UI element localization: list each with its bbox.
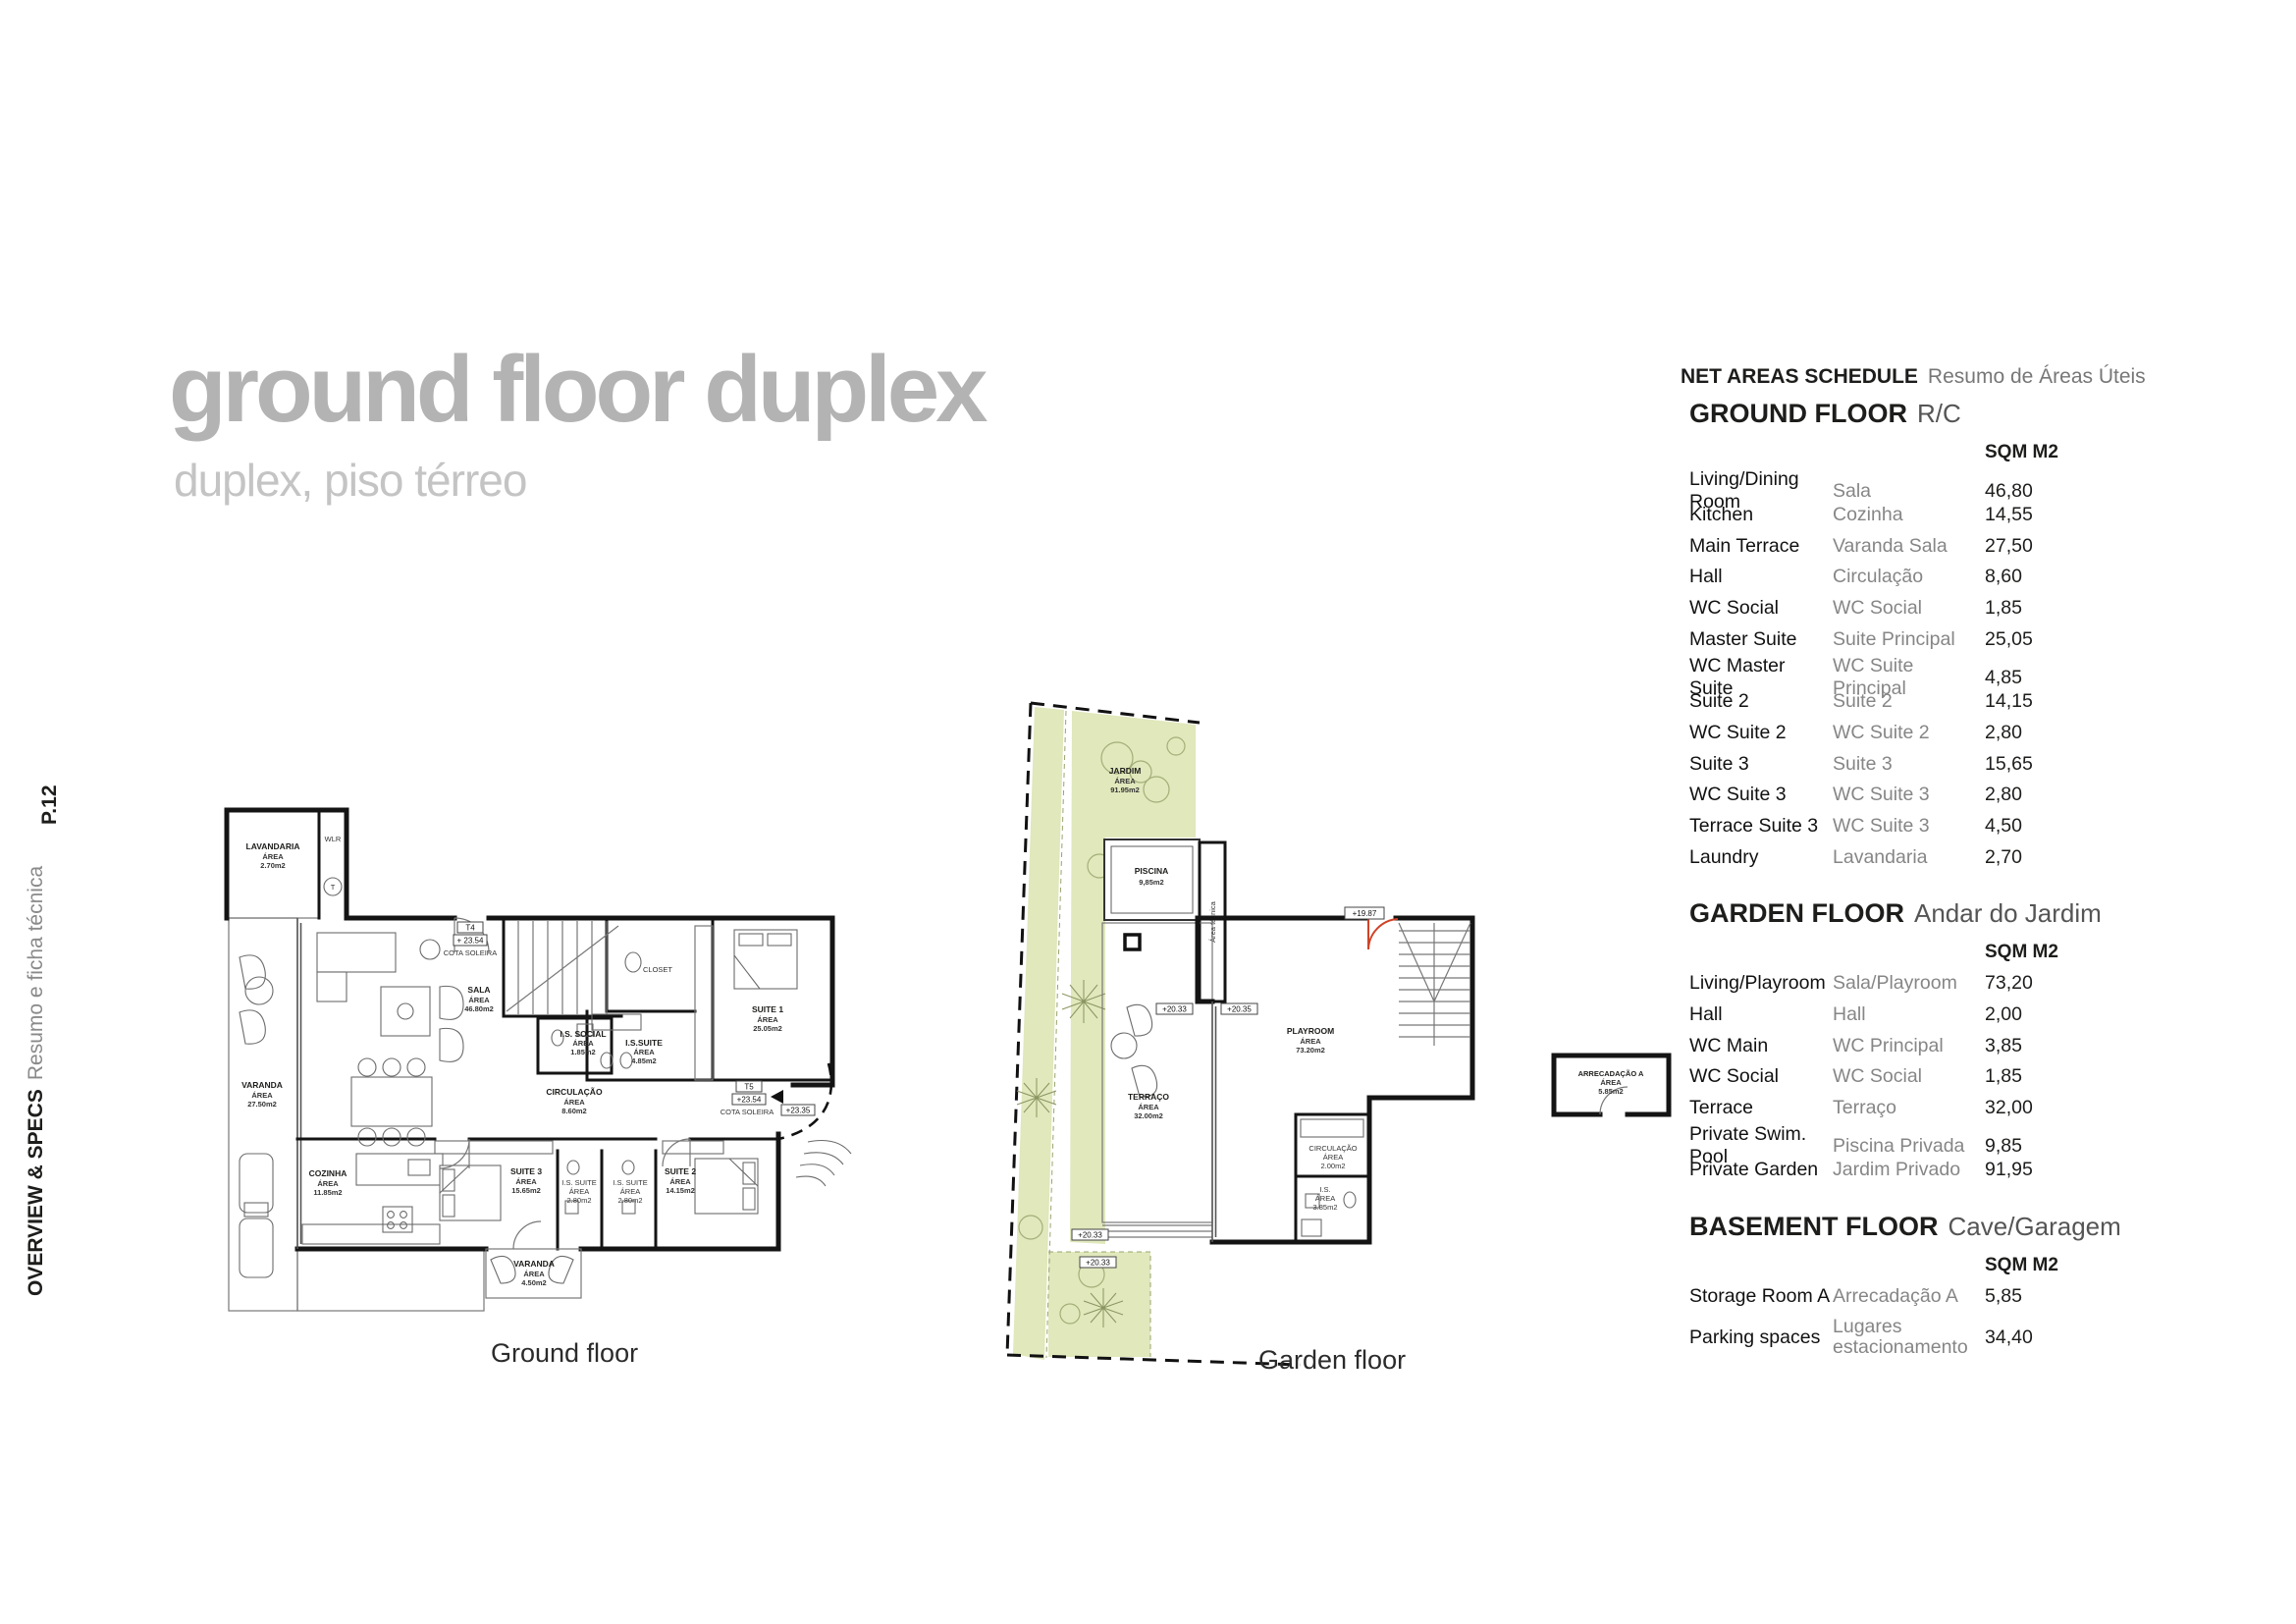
level-marker-t4: T4 + 23.54 COTA SOLEIRA — [444, 922, 497, 957]
table-row: KitchenCozinha14,55 — [1689, 500, 2279, 531]
table-row: Suite 3Suite 315,65 — [1689, 748, 2279, 780]
table-row: HallHall2,00 — [1689, 1000, 2279, 1031]
table-row: Living/Dining RoomSala46,80 — [1689, 468, 2279, 500]
svg-text:+23.54: +23.54 — [737, 1096, 762, 1105]
page-number: P.12 — [39, 785, 61, 826]
table-row: WC Suite 2WC Suite 22,80 — [1689, 718, 2279, 749]
table-row: Suite 2Suite 214,15 — [1689, 686, 2279, 718]
room-label-is-suite: I.S.SUITEÁREA4.85m2 — [625, 1038, 663, 1065]
svg-text:+20.33: +20.33 — [1078, 1231, 1102, 1240]
entrance-door-red: +19.87 — [1345, 907, 1398, 949]
table-row: WC Suite 3WC Suite 32,80 — [1689, 780, 2279, 811]
room-label-suite1: SUITE 1ÁREA25.05m2 — [752, 1004, 783, 1033]
room-label-terraco: TERRAÇOÁREA32.00m2 — [1128, 1092, 1169, 1120]
brochure-page: P.12 OVERVIEW & SPECSResumo e ficha técn… — [0, 0, 2296, 1624]
room-label-suite2: SUITE 2ÁREA14.15m2 — [665, 1166, 696, 1195]
room-label-is-suite2: I.S. SUITEÁREA2.80m2 — [561, 1178, 596, 1205]
section-heading-garden-floor: GARDEN FLOORAndar do Jardim — [1689, 898, 2279, 929]
table-row: Living/PlayroomSala/Playroom73,20 — [1689, 968, 2279, 1000]
table-row: TerraceTerraço32,00 — [1689, 1093, 2279, 1124]
bed-suite1-glyph — [734, 930, 797, 989]
terrace-deck — [228, 811, 484, 1311]
svg-text:+ 23.54: + 23.54 — [457, 937, 484, 946]
terrace-furniture — [240, 955, 273, 1277]
schedule-title: NET AREAS SCHEDULEResumo de Áreas Úteis — [1681, 365, 2279, 389]
garden-stairs-glyph — [1399, 923, 1470, 1046]
bed-suite3-glyph — [440, 1165, 501, 1220]
table-row: Master SuiteSuite Principal25,05 — [1689, 623, 2279, 655]
room-label-circulacao: CIRCULAÇÃOÁREA8.60m2 — [546, 1087, 603, 1115]
stairs-glyph — [507, 921, 618, 1014]
room-label-lavandaria: LAVANDARIAÁREA2.70m2 — [246, 841, 300, 870]
sidebar-secondary-label: Resumo e ficha técnica — [25, 866, 47, 1080]
sqm-column-header: SQM M2 — [1985, 942, 2279, 963]
garden-floor-rows: Living/PlayroomSala/Playroom73,20 HallHa… — [1689, 968, 2279, 1186]
table-row: WC MainWC Principal3,85 — [1689, 1030, 2279, 1061]
svg-text:T5: T5 — [744, 1083, 754, 1092]
table-row: Private GardenJardim Privado91,95 — [1689, 1155, 2279, 1186]
dining-table-glyph — [351, 1058, 432, 1146]
storage-room: ARRECADAÇÃO AÁREA5.85m2 — [1554, 1056, 1669, 1114]
section-heading-basement-floor: BASEMENT FLOORCave/Garagem — [1689, 1212, 2279, 1242]
table-row: WC Master SuiteWC Suite Principal4,85 — [1689, 655, 2279, 686]
room-label-garden-is: I.S.ÁREA3.85m2 — [1312, 1185, 1337, 1212]
room-label-arrecadacao: ARRECADAÇÃO AÁREA5.85m2 — [1578, 1069, 1644, 1096]
swimming-pool: PISCINA9,85m2 — [1104, 839, 1200, 920]
kitchen-island-glyph — [302, 1154, 443, 1244]
room-label-is-social: I.S. SOCIALÁREA1.85m2 — [560, 1029, 606, 1056]
laundry-walls — [227, 810, 347, 918]
sqm-column-header: SQM M2 — [1985, 442, 2279, 463]
laundry-tap-label: T — [331, 883, 336, 892]
room-label-suite3: SUITE 3ÁREA15.65m2 — [510, 1166, 542, 1195]
table-row: WC SocialWC Social1,85 — [1689, 1061, 2279, 1093]
table-row: LaundryLavandaria2,70 — [1689, 841, 2279, 873]
page-subtitle: duplex, piso térreo — [174, 454, 526, 507]
entry-path — [771, 1063, 851, 1186]
ground-floor-rows: Living/Dining RoomSala46,80 KitchenCozin… — [1689, 468, 2279, 873]
sqm-column-header: SQM M2 — [1985, 1255, 2279, 1276]
room-label-garden-circulacao: CIRCULAÇÃOÁREA2.00m2 — [1308, 1144, 1357, 1170]
svg-text:+20.33: +20.33 — [1086, 1259, 1110, 1268]
room-label-is-suite3: I.S. SUITEÁREA2.80m2 — [613, 1178, 647, 1205]
svg-text:+20.35: +20.35 — [1227, 1005, 1252, 1014]
bathroom-fixtures — [552, 952, 641, 1214]
ground-plan-caption: Ground floor — [491, 1338, 638, 1369]
room-label-playroom: PLAYROOMÁREA73.20m2 — [1287, 1026, 1334, 1055]
section-heading-ground-floor: GROUND FLOORR/C — [1689, 399, 2279, 429]
table-row: Main TerraceVaranda Sala27,50 — [1689, 530, 2279, 562]
table-row: Terrace Suite 3WC Suite 34,50 — [1689, 811, 2279, 842]
room-label-wlr: WLR — [325, 835, 342, 843]
coffee-table-glyph — [381, 986, 463, 1061]
garden-plan-caption: Garden floor — [1258, 1345, 1406, 1376]
table-row: Private Swim. PoolPiscina Privada9,85 — [1689, 1123, 2279, 1155]
svg-text:COTA SOLEIRA: COTA SOLEIRA — [721, 1108, 774, 1116]
room-label-cozinha: COZINHAÁREA11.85m2 — [309, 1168, 347, 1197]
room-label-sala: SALAÁREA46.80m2 — [464, 985, 494, 1013]
svg-text:T4: T4 — [465, 924, 475, 933]
svg-text:COTA SOLEIRA: COTA SOLEIRA — [444, 948, 497, 957]
room-label-closet: CLOSET — [643, 965, 672, 974]
sidebar-primary-label: OVERVIEW & SPECS — [25, 1089, 47, 1296]
svg-text:+20.33: +20.33 — [1162, 1005, 1187, 1014]
garden-floor-plan: PISCINA9,85m2 Área técnica — [1001, 677, 1688, 1380]
sidebar-section-label: OVERVIEW & SPECSResumo e ficha técnica — [26, 866, 47, 1296]
table-row: Storage Room AArrecadação A5,85 — [1689, 1281, 2279, 1313]
svg-text:+23.35: +23.35 — [786, 1107, 811, 1115]
table-row: HallCirculação8,60 — [1689, 562, 2279, 593]
page-title: ground floor duplex — [169, 341, 985, 440]
ground-floor-plan: T4 + 23.54 COTA SOLEIRA T5 +23.54 COTA S… — [145, 525, 862, 1340]
basement-floor-rows: Storage Room AArrecadação A5,85 Parking … — [1689, 1281, 2279, 1364]
bed-suite2-glyph — [695, 1159, 758, 1214]
svg-text:+19.87: +19.87 — [1353, 909, 1377, 918]
table-row: Parking spacesLugaresestacionamento34,40 — [1689, 1312, 2279, 1363]
room-label-varanda: VARANDAÁREA27.50m2 — [241, 1080, 283, 1109]
table-row: WC SocialWC Social1,85 — [1689, 593, 2279, 624]
net-areas-schedule: NET AREAS SCHEDULEResumo de Áreas Úteis … — [1681, 365, 2279, 1363]
